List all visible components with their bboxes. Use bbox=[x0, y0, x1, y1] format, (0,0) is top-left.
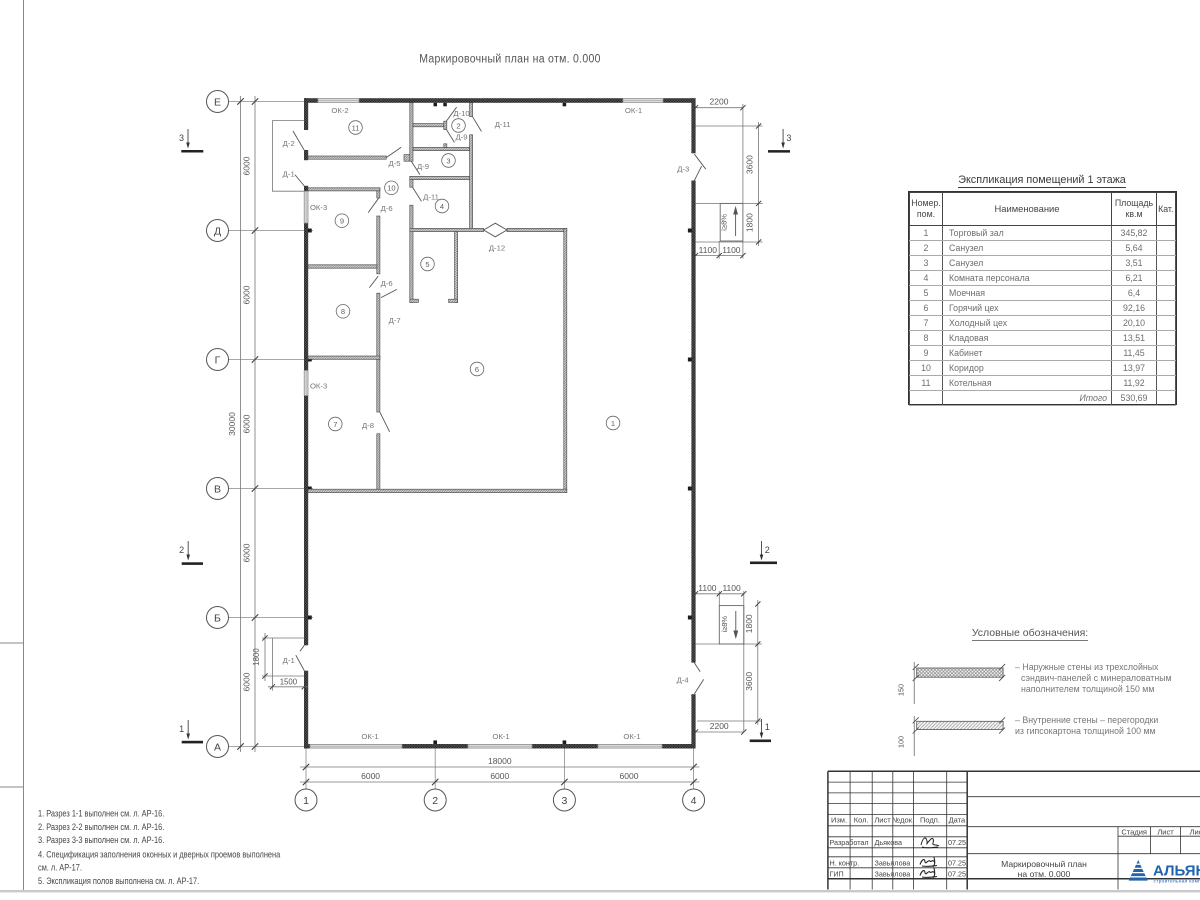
svg-text:1800: 1800 bbox=[744, 614, 754, 633]
svg-text:Дьякова: Дьякова bbox=[875, 838, 902, 847]
svg-text:2: 2 bbox=[456, 121, 460, 130]
svg-text:Д-2: Д-2 bbox=[283, 139, 295, 148]
svg-text:07.25: 07.25 bbox=[948, 838, 966, 847]
svg-text:Д-1: Д-1 bbox=[283, 656, 295, 665]
svg-text:i≥8%: i≥8% bbox=[720, 214, 729, 231]
svg-text:Д-8: Д-8 bbox=[362, 421, 374, 430]
svg-text:Д-4: Д-4 bbox=[677, 675, 690, 684]
svg-text:3600: 3600 bbox=[744, 672, 754, 691]
svg-text:30000: 30000 bbox=[227, 412, 237, 436]
svg-text:В: В bbox=[214, 483, 221, 495]
svg-text:на отм. 0.000: на отм. 0.000 bbox=[1018, 869, 1071, 879]
svg-text:Д-5: Д-5 bbox=[388, 159, 400, 168]
svg-text:ОК-1: ОК-1 bbox=[492, 732, 509, 741]
svg-text:6000: 6000 bbox=[620, 771, 639, 781]
svg-text:4: 4 bbox=[691, 795, 697, 807]
svg-text:Д-9: Д-9 bbox=[455, 132, 467, 141]
svg-text:Д-7: Д-7 bbox=[389, 316, 401, 325]
svg-text:Д-3: Д-3 bbox=[677, 164, 689, 173]
svg-text:Д-9: Д-9 bbox=[417, 162, 429, 171]
svg-text:7: 7 bbox=[333, 420, 337, 429]
svg-text:2: 2 bbox=[179, 545, 184, 555]
svg-text:6000: 6000 bbox=[490, 771, 509, 781]
svg-text:Стадия: Стадия bbox=[1121, 827, 1147, 836]
svg-text:Кол.: Кол. bbox=[854, 815, 869, 824]
svg-text:6000: 6000 bbox=[241, 543, 251, 562]
svg-text:1: 1 bbox=[179, 724, 184, 734]
svg-text:Д-10: Д-10 bbox=[453, 109, 469, 118]
svg-text:1500: 1500 bbox=[280, 677, 298, 686]
svg-text:11: 11 bbox=[352, 123, 360, 132]
svg-text:Дата: Дата bbox=[949, 815, 966, 824]
svg-text:07.25: 07.25 bbox=[948, 869, 966, 878]
svg-text:1: 1 bbox=[611, 419, 615, 428]
svg-text:1: 1 bbox=[303, 795, 309, 807]
svg-text:строительная компания: строительная компания bbox=[1154, 880, 1200, 885]
svg-text:Д-12: Д-12 bbox=[489, 243, 505, 252]
svg-text:Лист: Лист bbox=[1157, 827, 1174, 836]
svg-text:Д: Д bbox=[214, 225, 221, 237]
svg-text:10: 10 bbox=[387, 184, 395, 193]
svg-text:i≥8%: i≥8% bbox=[720, 616, 729, 633]
svg-text:3: 3 bbox=[561, 795, 567, 807]
svg-text:ОК-3: ОК-3 bbox=[310, 203, 327, 212]
svg-text:1800: 1800 bbox=[744, 213, 754, 232]
svg-text:Лис: Лис bbox=[1190, 827, 1200, 836]
svg-text:07.25: 07.25 bbox=[948, 858, 966, 867]
svg-text:АЛЬЯНС: АЛЬЯНС bbox=[1153, 863, 1200, 880]
svg-text:Е: Е bbox=[214, 96, 221, 108]
svg-text:Д-11: Д-11 bbox=[423, 192, 439, 201]
svg-text:6000: 6000 bbox=[241, 285, 251, 304]
svg-text:6: 6 bbox=[475, 365, 479, 374]
svg-text:100: 100 bbox=[897, 736, 906, 748]
svg-text:6000: 6000 bbox=[361, 771, 380, 781]
svg-text:ОК-3: ОК-3 bbox=[310, 381, 327, 390]
svg-text:А: А bbox=[214, 741, 221, 753]
svg-text:ОК-2: ОК-2 bbox=[331, 106, 348, 115]
svg-text:ОК-1: ОК-1 bbox=[623, 732, 640, 741]
svg-text:Завьялова: Завьялова bbox=[875, 869, 911, 878]
svg-text:2: 2 bbox=[765, 545, 770, 555]
svg-text:3: 3 bbox=[786, 133, 791, 143]
svg-text:Д-11: Д-11 bbox=[495, 120, 511, 129]
svg-text:Б: Б bbox=[214, 612, 221, 624]
svg-text:ОК-1: ОК-1 bbox=[625, 106, 642, 115]
svg-text:Д-6: Д-6 bbox=[381, 204, 393, 213]
svg-text:3600: 3600 bbox=[744, 155, 754, 174]
svg-text:5: 5 bbox=[425, 260, 429, 269]
svg-text:№док.: №док. bbox=[892, 815, 914, 824]
svg-text:1: 1 bbox=[765, 722, 770, 732]
svg-text:8: 8 bbox=[341, 307, 345, 316]
svg-text:1100: 1100 bbox=[699, 245, 718, 255]
svg-text:3: 3 bbox=[179, 133, 184, 143]
svg-text:2200: 2200 bbox=[710, 721, 729, 731]
svg-text:6000: 6000 bbox=[241, 156, 251, 175]
svg-text:Подп.: Подп. bbox=[920, 815, 940, 824]
svg-text:9: 9 bbox=[340, 217, 344, 226]
svg-text:18000: 18000 bbox=[488, 756, 512, 766]
svg-text:150: 150 bbox=[897, 684, 906, 696]
svg-text:1100: 1100 bbox=[722, 583, 741, 593]
svg-text:3: 3 bbox=[446, 156, 450, 165]
svg-text:6000: 6000 bbox=[241, 672, 251, 691]
svg-text:4: 4 bbox=[440, 202, 444, 211]
svg-text:1800: 1800 bbox=[252, 648, 261, 666]
svg-text:Д-6: Д-6 bbox=[381, 279, 393, 288]
svg-text:1100: 1100 bbox=[698, 583, 717, 593]
svg-text:2: 2 bbox=[432, 795, 438, 807]
svg-text:Г: Г bbox=[215, 354, 221, 366]
svg-text:Д-1: Д-1 bbox=[283, 170, 295, 179]
svg-text:1100: 1100 bbox=[722, 245, 741, 255]
svg-text:ОК-1: ОК-1 bbox=[361, 732, 378, 741]
svg-text:Лист: Лист bbox=[874, 815, 891, 824]
svg-text:2200: 2200 bbox=[710, 97, 729, 107]
svg-text:Завьялова: Завьялова bbox=[875, 858, 911, 867]
svg-text:Маркировочный план: Маркировочный план bbox=[1001, 859, 1087, 869]
svg-text:6000: 6000 bbox=[241, 414, 251, 433]
